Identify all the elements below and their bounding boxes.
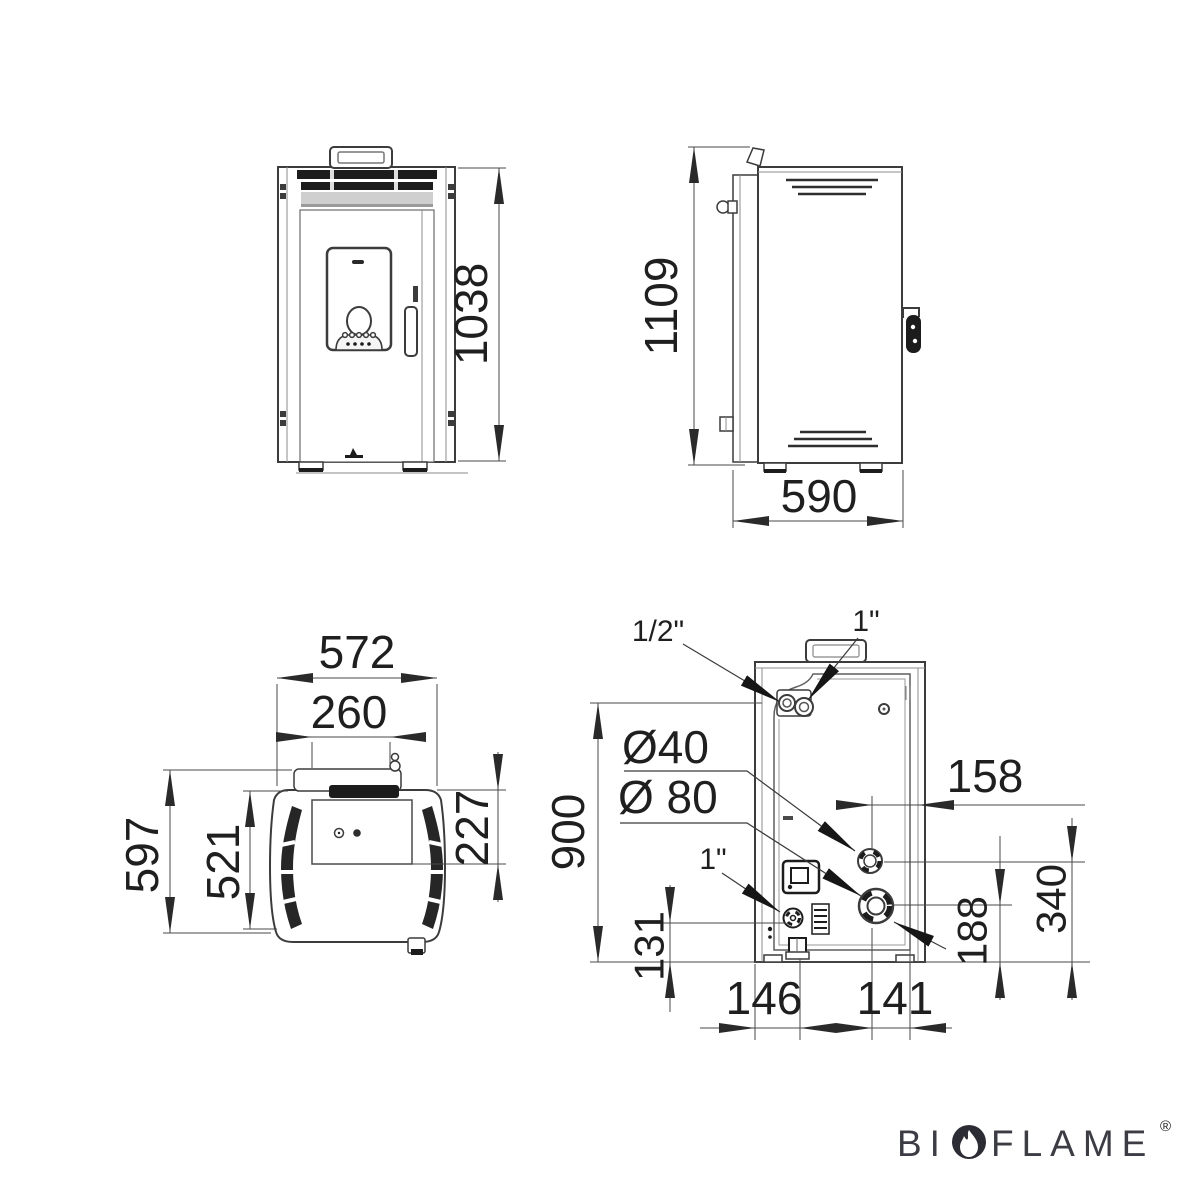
brand-logo: BI FLAME ® [897, 1118, 1171, 1164]
rear-air-intake [859, 889, 893, 923]
label-connector-half-inch: 1/2" [632, 615, 684, 648]
dim-top-width-label: 572 [319, 626, 396, 678]
rear-view [755, 640, 925, 962]
label-connector-one-inch-bottom: 1" [699, 843, 726, 876]
dim-rear-offset-bottom-right-label: 141 [857, 972, 934, 1024]
side-body [758, 167, 902, 463]
dim-top-lid-width: 260 [279, 686, 423, 768]
door-peephole [347, 307, 371, 335]
dim-rear-offset-right-label: 158 [947, 750, 1024, 802]
dim-top-body-depth-label: 521 [197, 824, 249, 901]
door-handle [405, 307, 417, 356]
front-view [278, 147, 468, 473]
stove-dimension-drawing: 1038 [0, 0, 1200, 1200]
rear-screw [879, 704, 889, 714]
registered-mark: ® [1160, 1118, 1171, 1135]
dim-front-height-label: 1038 [445, 263, 497, 365]
dim-side-depth: 590 [733, 470, 903, 528]
brand-suffix: FLAME [991, 1123, 1154, 1164]
dim-top-panel-depth-label: 227 [446, 790, 498, 867]
front-top-handle [330, 147, 392, 168]
dim-rear-offset-bottom-left-label: 146 [726, 972, 803, 1024]
side-handle [903, 308, 921, 353]
dim-rear-height-label: 900 [542, 794, 594, 871]
rear-top-handle [806, 640, 866, 662]
dim-side-depth-label: 590 [781, 470, 858, 522]
dim-top-lid-width-label: 260 [311, 686, 388, 738]
label-air-diameter: Ø 80 [618, 771, 718, 823]
top-control-panel [312, 800, 412, 864]
top-hinge-bar [329, 785, 399, 798]
dim-rear-smoke-height-label: 340 [1028, 864, 1075, 934]
top-foot [408, 938, 425, 955]
front-door [300, 210, 434, 462]
dimension-drawing-page: 1038 [0, 0, 1200, 1200]
door-hinge-mark [413, 286, 418, 302]
dim-rear-air-height-label: 188 [949, 896, 996, 966]
dim-rear-valve-height-label: 131 [626, 911, 673, 981]
brand-prefix: BI [897, 1123, 948, 1164]
label-smoke-diameter: Ø40 [622, 721, 709, 773]
rear-water-connectors [777, 690, 813, 716]
top-lid-knob [390, 754, 400, 772]
label-connector-one-inch-top: 1" [852, 605, 879, 638]
front-top-grille [297, 170, 437, 207]
side-view [717, 148, 921, 473]
side-front-strip [733, 175, 758, 462]
dim-side-height-label: 1109 [635, 257, 687, 356]
side-door-knob [717, 201, 737, 213]
side-top-handle [747, 148, 764, 166]
top-panel-button-right [353, 829, 361, 837]
top-view [270, 754, 445, 956]
rear-smoke-outlet [858, 849, 882, 873]
dim-top-depth-label: 597 [116, 817, 168, 894]
front-logo-mark [345, 455, 363, 458]
